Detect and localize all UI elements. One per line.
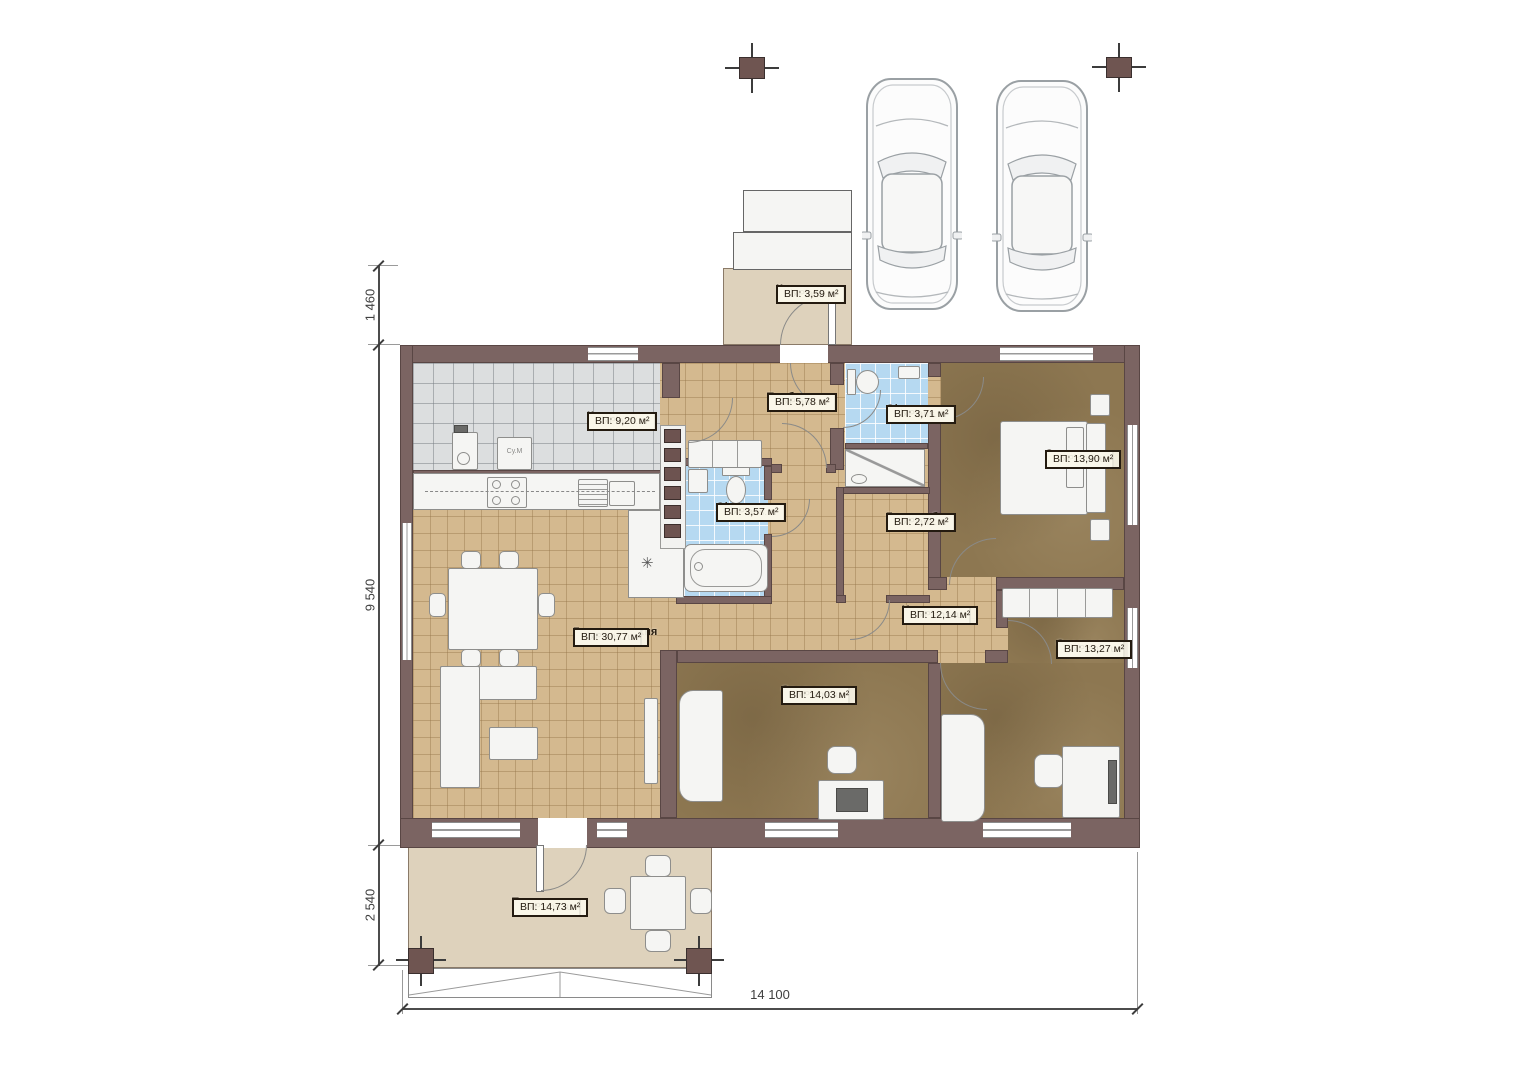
chimney-flue xyxy=(664,486,681,500)
window xyxy=(765,822,838,838)
dimension-extension xyxy=(368,965,408,966)
chimney-flue xyxy=(664,429,681,443)
washer-icon: Су.М xyxy=(497,437,532,470)
room-area: ВП: 13,27 м² xyxy=(1056,640,1132,659)
wall xyxy=(836,487,844,602)
water-heater-dial xyxy=(457,452,470,465)
chimney-flue xyxy=(664,524,681,538)
terrace-edge-lines xyxy=(409,969,711,997)
wall xyxy=(928,663,941,818)
nightstand xyxy=(1090,519,1110,541)
wall xyxy=(928,577,947,590)
dimension-value: 2 540 xyxy=(363,889,378,922)
dining-chair xyxy=(499,551,519,569)
monitor-icon xyxy=(1108,760,1117,804)
room-area: ВП: 2,72 м² xyxy=(886,513,956,532)
stove-burner xyxy=(492,496,501,505)
chimney-flue xyxy=(664,505,681,519)
sofa-side xyxy=(440,666,480,788)
terrace-door-opening xyxy=(538,818,587,848)
room-area: ВП: 13,90 м² xyxy=(1045,450,1121,469)
stove-burner xyxy=(511,496,520,505)
porch-step xyxy=(743,190,852,232)
wall xyxy=(836,595,846,603)
stove-burner xyxy=(511,480,520,489)
room-area: ВП: 12,14 м² xyxy=(902,606,978,625)
snowflake-symbol: ✳ xyxy=(641,556,654,571)
window xyxy=(432,822,520,838)
dining-chair xyxy=(429,593,446,617)
dimension-line xyxy=(402,1008,1137,1010)
dimension-extension xyxy=(368,344,400,345)
shower-drain xyxy=(851,474,867,484)
chimney-flue xyxy=(664,467,681,481)
terrace-post xyxy=(686,948,712,974)
room-area: ВП: 3,59 м² xyxy=(776,285,846,304)
floor-plan-canvas: ✳ Су.М xyxy=(0,0,1528,1080)
wall xyxy=(676,596,772,604)
terrace-chair xyxy=(645,855,671,877)
toilet-icon xyxy=(726,476,746,504)
coffee-table xyxy=(489,727,538,760)
dimension-value: 14 100 xyxy=(750,987,790,1002)
dimension-extension xyxy=(368,265,398,266)
window xyxy=(597,822,627,838)
car-icon xyxy=(992,76,1092,316)
desk-chair xyxy=(827,746,857,774)
chimney-flue xyxy=(664,448,681,462)
axis-marker-icon xyxy=(1106,57,1132,78)
wall xyxy=(662,363,680,398)
dining-chair xyxy=(461,551,481,569)
room-area: ВП: 30,77 м² xyxy=(573,628,649,647)
wall xyxy=(886,595,930,603)
window xyxy=(1127,425,1138,525)
sink-icon xyxy=(688,469,708,493)
nightstand xyxy=(1090,394,1110,416)
dining-chair xyxy=(499,649,519,667)
dimension-extension xyxy=(368,845,400,846)
entry-opening xyxy=(780,345,828,363)
terrace-chair xyxy=(604,888,626,914)
printer-icon xyxy=(836,788,868,812)
dimension-extension xyxy=(1137,852,1138,1014)
bathtub-inner xyxy=(690,549,762,587)
room-area: ВП: 14,03 м² xyxy=(781,686,857,705)
room-area: ВП: 14,73 м² xyxy=(512,898,588,917)
boiler-vent xyxy=(454,425,468,433)
wall xyxy=(764,466,772,500)
dimension-line xyxy=(378,266,380,966)
stove-burner xyxy=(492,480,501,489)
wall xyxy=(836,487,930,494)
dining-chair xyxy=(461,649,481,667)
window xyxy=(1127,608,1138,668)
dimension-value: 1 460 xyxy=(363,289,378,322)
room-area: ВП: 3,57 м² xyxy=(716,503,786,522)
bed xyxy=(941,714,985,822)
axis-marker-icon xyxy=(739,57,765,79)
window xyxy=(1000,347,1093,361)
desk-chair xyxy=(1034,754,1064,788)
dimension-value: 9 540 xyxy=(363,579,378,612)
washer-label: Су.М xyxy=(498,448,531,455)
room-area: ВП: 5,78 м² xyxy=(767,393,837,412)
wall xyxy=(928,420,941,583)
terrace-edge-band xyxy=(408,968,712,998)
window xyxy=(402,523,412,660)
room-area: ВП: 9,20 м² xyxy=(587,412,657,431)
dining-table xyxy=(448,568,538,650)
bed xyxy=(679,690,723,802)
dining-chair xyxy=(538,593,555,617)
wall xyxy=(985,650,1008,663)
wall xyxy=(1124,345,1140,848)
toilet-tank xyxy=(722,467,750,476)
car-icon xyxy=(862,74,962,314)
window xyxy=(588,347,638,361)
sink-icon xyxy=(609,481,635,506)
terrace-post xyxy=(408,948,434,974)
tv-cabinet xyxy=(644,698,658,784)
wall xyxy=(928,363,941,377)
porch-step xyxy=(733,232,852,270)
closet xyxy=(1002,588,1113,618)
vestibule-bench xyxy=(688,440,762,468)
counter-dashed-line xyxy=(425,491,655,492)
room-area: ВП: 3,71 м² xyxy=(886,405,956,424)
terrace-chair xyxy=(690,888,712,914)
terrace-chair xyxy=(645,930,671,952)
dishwasher-icon xyxy=(578,479,608,507)
sink-icon xyxy=(898,366,920,379)
window xyxy=(983,822,1071,838)
wall xyxy=(826,464,836,473)
terrace-table xyxy=(630,876,686,930)
wall xyxy=(660,650,677,818)
wall xyxy=(677,650,938,663)
